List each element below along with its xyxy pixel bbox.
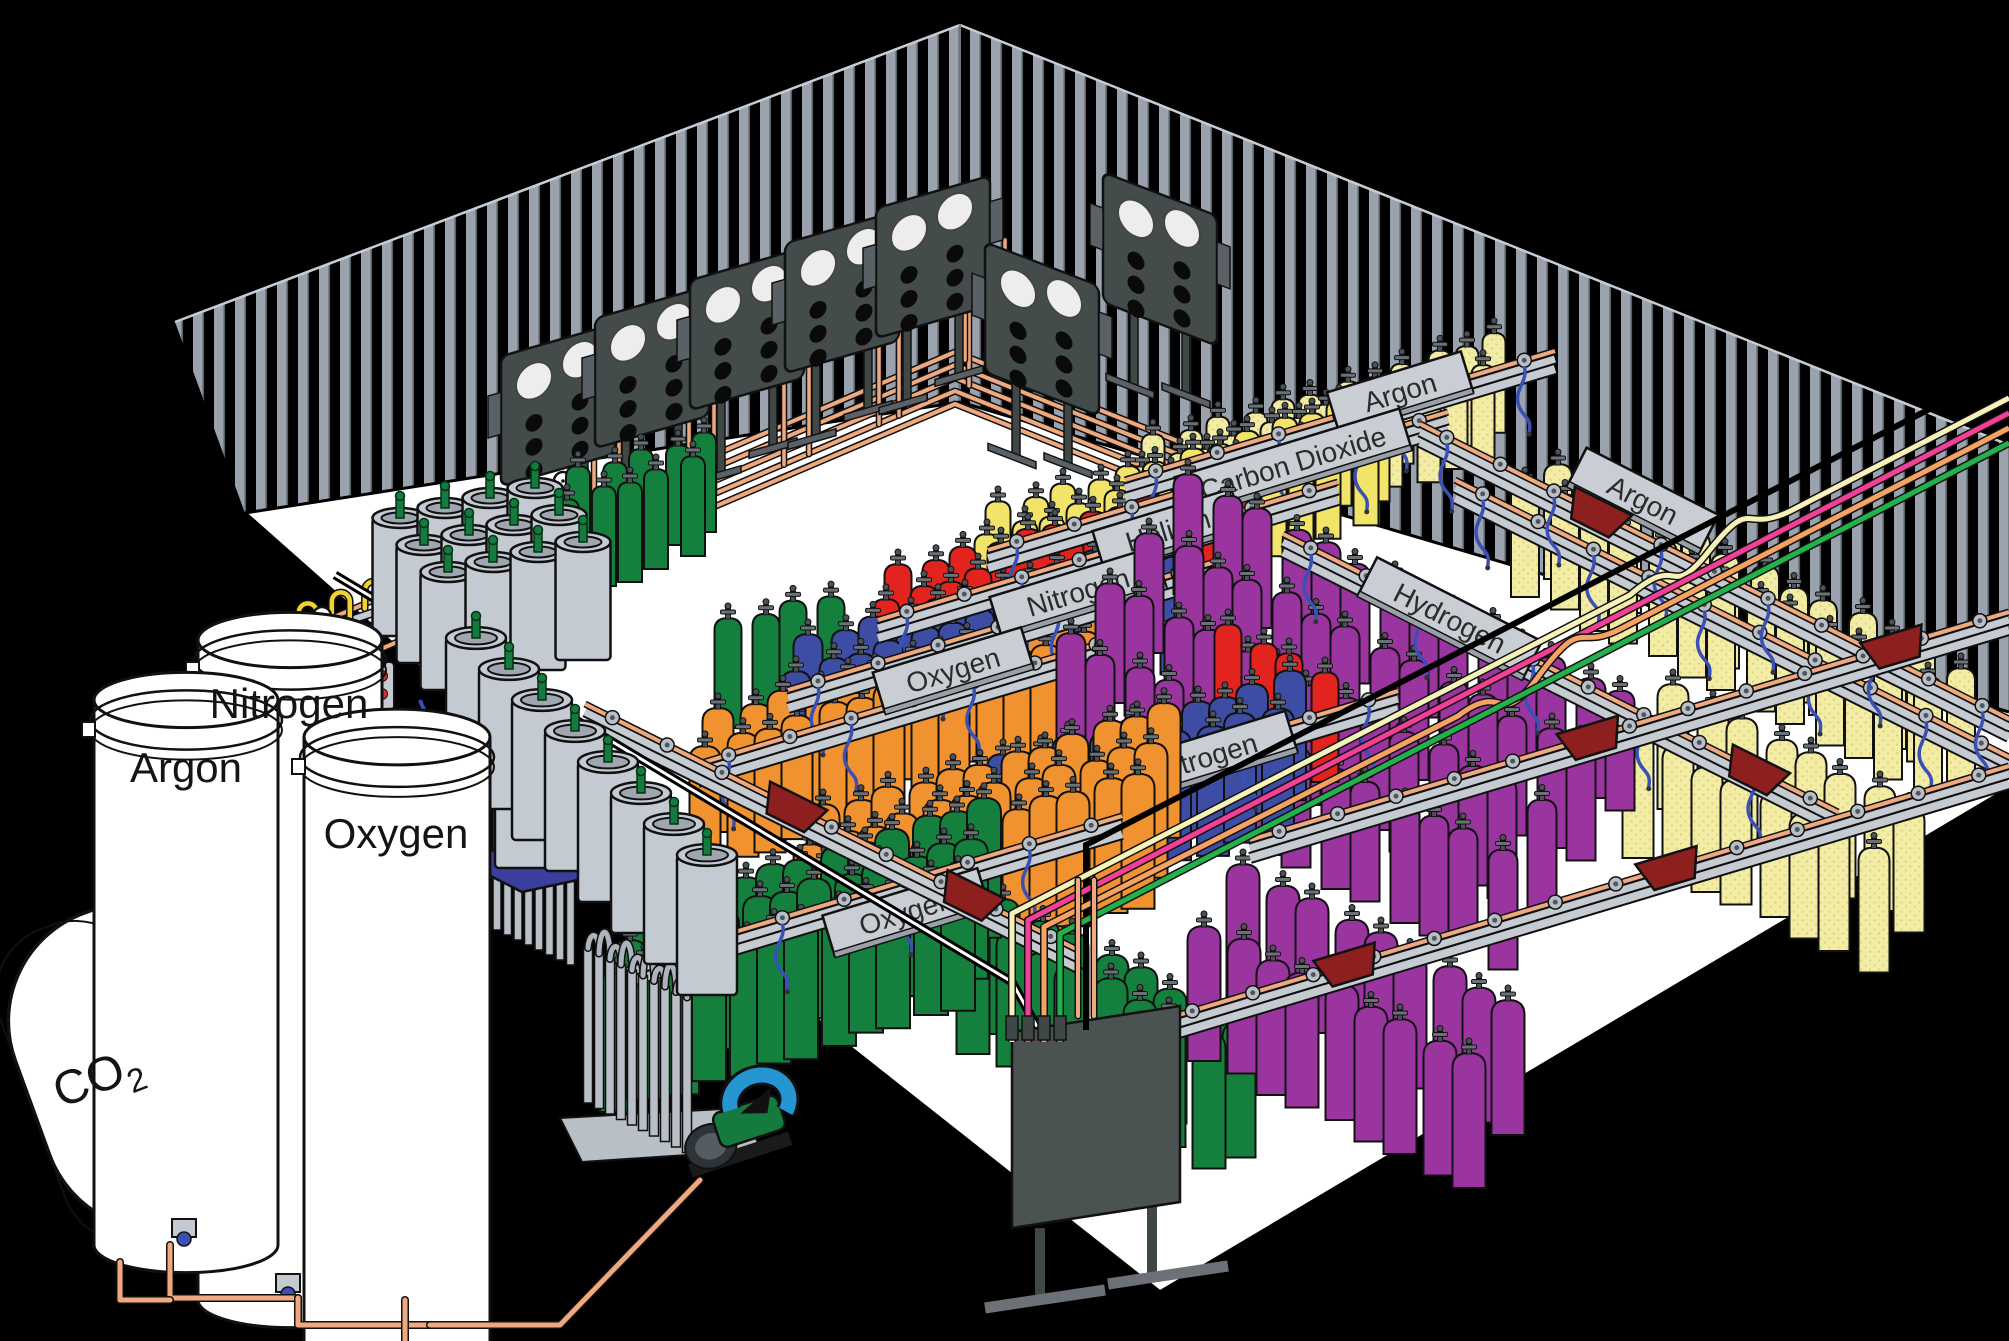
gas-filling-plant-illustration: ArgonCarbon DioxideHeliumNitrogenOxygenA…: [0, 0, 2009, 1341]
tank-oxygen: [292, 709, 494, 1341]
tank-label-argon: Argon: [130, 744, 242, 791]
tank-label-nitrogen: Nitrogen: [210, 680, 369, 727]
dewar: [556, 516, 611, 661]
dewar: [677, 829, 737, 996]
tank-label-oxygen: Oxygen: [324, 810, 469, 857]
illustration-canvas: ArgonCarbon DioxideHeliumNitrogenOxygenA…: [0, 0, 2009, 1341]
distribution-panel: [1012, 1006, 1180, 1228]
